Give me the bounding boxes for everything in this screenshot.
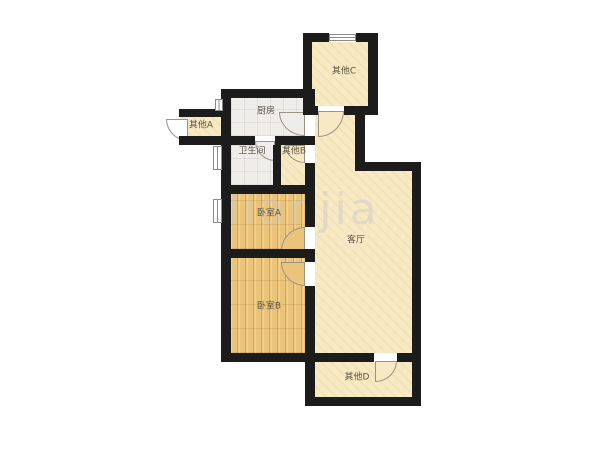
room-label-other-d: 其他D bbox=[345, 374, 370, 383]
floorplan-canvas: lianjia 其他A 厨房 其他C 卫生间 其他B 卧室A 客厅 卧室B 其他… bbox=[0, 0, 600, 450]
wall-other-c-top-left bbox=[303, 33, 329, 42]
wall-right-exterior bbox=[412, 162, 421, 406]
window-bedroom-a bbox=[213, 199, 222, 223]
watermark-text: lianjia bbox=[228, 188, 380, 232]
wall-bath-otherb-divider bbox=[273, 145, 281, 190]
wall-bottom-right bbox=[397, 353, 421, 362]
wall-left-exterior bbox=[221, 89, 231, 362]
room-label-living: 客厅 bbox=[347, 237, 365, 246]
wall-kitchen-top bbox=[221, 89, 315, 98]
wall-middle-mid bbox=[305, 163, 315, 227]
window-kitchen bbox=[215, 99, 223, 111]
wall-bottom-left bbox=[221, 353, 374, 362]
wall-kitchen-bottom-right bbox=[275, 136, 315, 145]
wall-other-c-right bbox=[368, 33, 378, 115]
room-label-bedroom-b: 卧室B bbox=[257, 303, 281, 312]
wall-bath-bottom bbox=[221, 185, 315, 194]
window-bathroom bbox=[213, 146, 222, 170]
room-label-other-b: 其他B bbox=[282, 148, 306, 157]
wall-middle-lower bbox=[305, 286, 315, 397]
wall-bottom-exterior bbox=[305, 397, 421, 406]
wall-kitchen-bottom-left bbox=[179, 136, 255, 145]
room-label-other-a: 其他A bbox=[189, 122, 213, 131]
room-label-bathroom: 卫生间 bbox=[238, 148, 265, 157]
room-label-other-c: 其他C bbox=[332, 68, 356, 77]
room-label-bedroom-a: 卧室A bbox=[257, 210, 281, 219]
room-label-kitchen: 厨房 bbox=[257, 108, 275, 117]
wall-bedrooms-divider bbox=[221, 249, 315, 258]
window-other-c bbox=[329, 34, 356, 41]
